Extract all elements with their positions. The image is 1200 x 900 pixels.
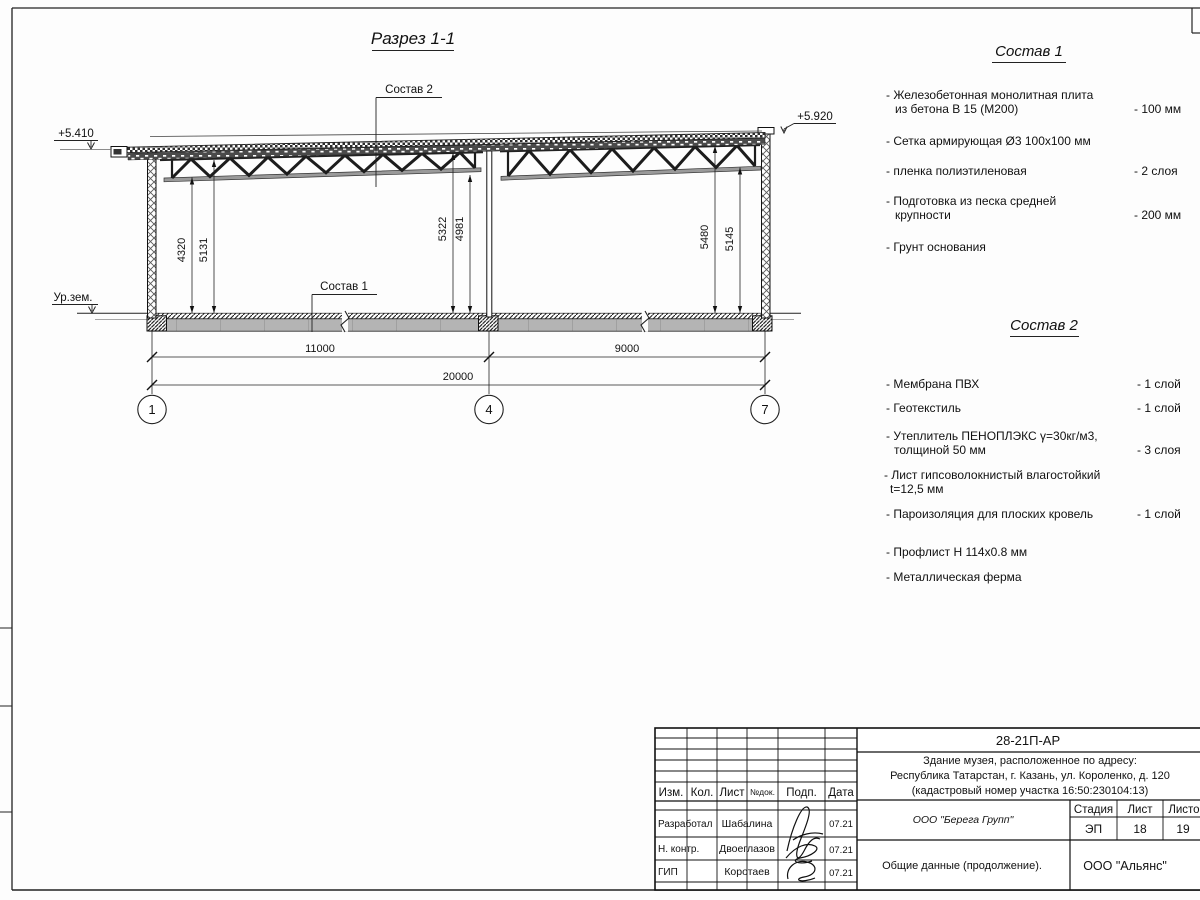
titleblock-doc-title: Общие данные (продолжение). bbox=[882, 860, 1042, 872]
list-item-value: - 1 слой bbox=[1137, 401, 1181, 415]
titleblock-header-data: Дата bbox=[828, 787, 854, 799]
horizontal-dimensions bbox=[152, 332, 765, 395]
drawing-sheet: 4320 5131 5322 4981 5480 5145 11000 9000… bbox=[0, 0, 1200, 900]
titleblock-stage-label: Стадия bbox=[1074, 804, 1113, 816]
sostav2-heading: Состав 2 bbox=[1010, 317, 1078, 334]
left-wall bbox=[148, 151, 157, 318]
axis-7-label: 7 bbox=[761, 402, 768, 417]
elevation-mark-right: +5.920 bbox=[781, 111, 836, 133]
list-item: - Утеплитель ПЕНОПЛЭКС γ=30кг/м3, bbox=[886, 429, 1098, 443]
list-item: крупности bbox=[895, 208, 951, 222]
list-item: - Металлическая ферма bbox=[886, 570, 1022, 584]
axis-1-label: 1 bbox=[148, 402, 155, 417]
list-item-value: - 100 мм bbox=[1134, 102, 1181, 116]
titleblock-stage-value: ЭП bbox=[1085, 822, 1102, 836]
titleblock-row-date: 07.21 bbox=[829, 845, 853, 856]
list-item-value: - 1 слой bbox=[1137, 507, 1181, 521]
titleblock-row-role: Разработал bbox=[658, 818, 713, 830]
titleblock-row-name: Шабалина bbox=[722, 818, 773, 830]
list-item: t=12,5 мм bbox=[890, 482, 944, 496]
titleblock-row-date: 07.21 bbox=[829, 819, 853, 830]
dim-5131: 5131 bbox=[198, 238, 210, 262]
list-item: - Геотекстиль bbox=[886, 401, 961, 415]
ground-level-label: Ур.зем. bbox=[53, 292, 92, 304]
dim-5322: 5322 bbox=[437, 217, 449, 241]
titleblock-row-date: 07.21 bbox=[829, 868, 853, 879]
titleblock-header-ndok: №док. bbox=[750, 787, 775, 797]
titleblock-row-role: Н. контр. bbox=[658, 844, 699, 855]
list-item: - Грунт основания bbox=[886, 240, 986, 254]
sostav1-heading: Состав 1 bbox=[995, 43, 1063, 60]
right-truss bbox=[500, 145, 761, 180]
list-item: - Железобетонная монолитная плита bbox=[886, 88, 1094, 102]
list-item: - Подготовка из песка средней bbox=[886, 194, 1056, 208]
list-item: из бетона В 15 (М200) bbox=[895, 102, 1018, 116]
titleblock-row-name: Двоеглазов bbox=[719, 843, 775, 855]
list-item: - пленка полиэтиленовая bbox=[886, 164, 1027, 178]
titleblock-address-2: Республика Татарстан, г. Казань, ул. Кор… bbox=[890, 770, 1170, 782]
list-item-value: - 200 мм bbox=[1134, 208, 1181, 222]
center-column bbox=[487, 151, 492, 317]
list-item: - Сетка армирующая Ø3 100x100 мм bbox=[886, 134, 1091, 148]
drawing-canvas: 4320 5131 5322 4981 5480 5145 11000 9000… bbox=[0, 0, 1200, 900]
axis-bubbles: 1 4 7 bbox=[138, 395, 779, 423]
list-item-value: - 3 слоя bbox=[1137, 443, 1181, 457]
list-item-value: - 1 слой bbox=[1137, 377, 1181, 391]
elevation-left-value: +5.410 bbox=[58, 128, 94, 140]
list-item: - Пароизоляция для плоских кровель bbox=[886, 507, 1093, 521]
titleblock-sheet-value: 18 bbox=[1133, 822, 1147, 836]
titleblock-header-podp: Подп. bbox=[786, 787, 817, 799]
sostav2-list: Состав 2 - Мембрана ПВХ - 1 слой - Геоте… bbox=[884, 317, 1181, 584]
section-title-text: Разрез 1-1 bbox=[371, 29, 455, 48]
titleblock-doc-number: 28-21П-АР bbox=[996, 733, 1060, 748]
callout-sostav2-label: Состав 2 bbox=[385, 84, 433, 96]
dim-5145: 5145 bbox=[724, 227, 736, 251]
sostav1-list: Состав 1 - Железобетонная монолитная пли… bbox=[886, 43, 1181, 254]
dim-20000: 20000 bbox=[443, 371, 474, 383]
right-wall bbox=[762, 134, 771, 318]
titleblock-sheets-label: Листов bbox=[1168, 804, 1200, 816]
ground-level-mark: Ур.зем. bbox=[52, 292, 98, 313]
roof-deck bbox=[111, 133, 765, 161]
titleblock-header-list: Лист bbox=[720, 787, 746, 799]
elevation-mark-left: +5.410 bbox=[54, 128, 111, 150]
elevation-right-value: +5.920 bbox=[797, 111, 833, 123]
dim-9000: 9000 bbox=[615, 343, 639, 355]
callout-sostav1-label: Состав 1 bbox=[320, 281, 368, 293]
titleblock-sheets-value: 19 bbox=[1176, 822, 1190, 836]
titleblock-row-name: Коротаев bbox=[724, 866, 770, 878]
titleblock-header-kol: Кол. bbox=[691, 787, 714, 799]
floor-slab bbox=[77, 311, 801, 332]
list-item: - Лист гипсоволокнистый влагостойкий bbox=[884, 468, 1100, 482]
dim-5480: 5480 bbox=[699, 225, 711, 249]
titleblock-company: ООО "Берега Групп" bbox=[913, 814, 1015, 826]
titleblock-header-izm: Изм. bbox=[659, 787, 684, 799]
list-item: толщиной 50 мм bbox=[894, 443, 986, 457]
list-item-value: - 2 слоя bbox=[1134, 164, 1178, 178]
list-item: - Мембрана ПВХ bbox=[886, 377, 979, 391]
titleblock-address-3: (кадастровый номер участка 16:50:230104:… bbox=[912, 785, 1149, 797]
section-title: Разрез 1-1 bbox=[371, 29, 455, 51]
titleblock-org: ООО "Альянс" bbox=[1083, 859, 1167, 873]
titleblock-row-role: ГИП bbox=[658, 867, 678, 878]
dim-4320: 4320 bbox=[176, 238, 188, 262]
titleblock-address-1: Здание музея, расположенное по адресу: bbox=[923, 755, 1137, 767]
dim-4981: 4981 bbox=[454, 217, 466, 241]
list-item: - Профлист Н 114x0.8 мм bbox=[886, 545, 1027, 559]
axis-4-label: 4 bbox=[485, 402, 492, 417]
title-block: 28-21П-АР Здание музея, расположенное по… bbox=[655, 728, 1200, 890]
dim-11000: 11000 bbox=[305, 343, 335, 355]
titleblock-sheet-label: Лист bbox=[1128, 804, 1154, 816]
